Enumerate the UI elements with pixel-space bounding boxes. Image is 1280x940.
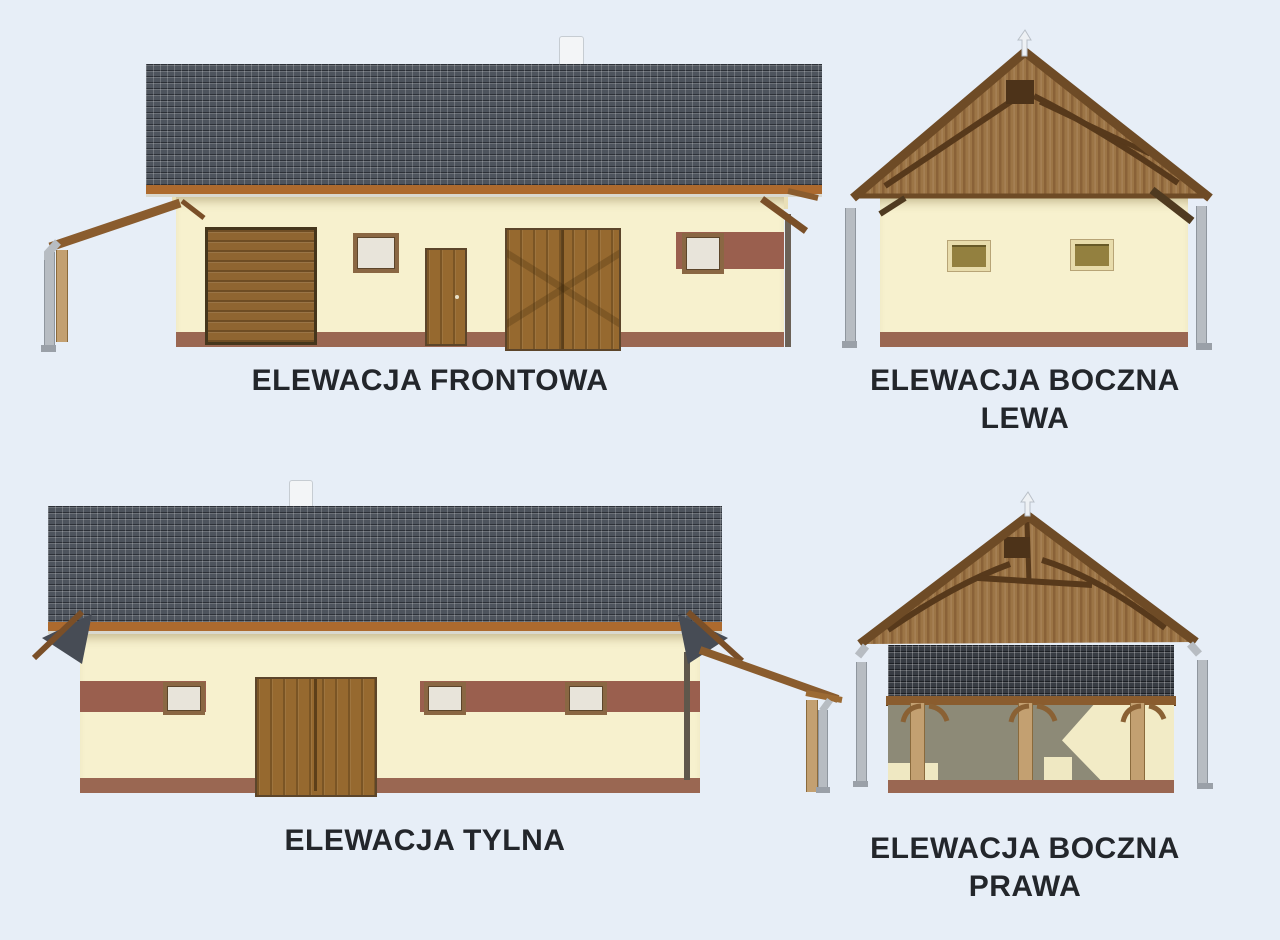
side-right-gable-vent xyxy=(1004,537,1030,558)
front-entry-door xyxy=(425,248,467,346)
side-left-roof-finial xyxy=(1018,30,1031,56)
front-window-small xyxy=(353,233,399,273)
side-left-window-1 xyxy=(948,241,990,271)
front-garage-door xyxy=(205,227,317,345)
side-left-window-2 xyxy=(1071,240,1113,270)
side-left-gable xyxy=(853,30,1210,221)
front-left-downspout-foot xyxy=(41,345,56,352)
side-right-truss-arc-right xyxy=(1042,560,1165,628)
side-left-wall xyxy=(880,198,1188,347)
side-right-truss-arc-left xyxy=(888,564,1010,630)
side-right-gable xyxy=(858,492,1199,656)
caption-side-left-line2: LEWA xyxy=(845,400,1205,438)
side-left-truss-arc-left xyxy=(885,98,1016,186)
side-right-ground-plinth xyxy=(888,780,1174,793)
side-right-inner-light-patch-2 xyxy=(1044,757,1072,782)
rear-carport-beam xyxy=(700,650,838,699)
front-barn-double-door xyxy=(505,228,621,351)
caption-rear-elevation: ELEWACJA TYLNA xyxy=(115,822,735,860)
side-right-post-right xyxy=(1130,703,1145,787)
rear-carport-post xyxy=(806,700,818,792)
rear-carport-downspout-foot xyxy=(816,787,830,793)
side-right-truss-collar-beam xyxy=(978,578,1092,585)
side-right-downspout-left xyxy=(856,662,867,784)
side-right-post-center xyxy=(1018,703,1033,792)
side-left-downspout-left-foot xyxy=(842,341,857,348)
caption-side-left-elevation: ELEWACJA BOCZNA LEWA xyxy=(845,362,1205,438)
caption-side-right-line1: ELEWACJA BOCZNA xyxy=(845,830,1205,868)
rear-window-3 xyxy=(565,682,607,715)
rear-roof-fascia xyxy=(48,622,722,634)
caption-side-right-elevation: ELEWACJA BOCZNA PRAWA xyxy=(845,830,1205,906)
front-roof-fascia xyxy=(146,185,822,197)
caption-front-text: ELEWACJA FRONTOWA xyxy=(252,364,609,397)
side-left-truss-arc-right xyxy=(1034,96,1178,183)
side-right-downspout-right xyxy=(1197,660,1208,786)
front-carport-post xyxy=(56,250,68,342)
rear-double-door xyxy=(255,677,377,797)
side-right-post-left xyxy=(910,703,925,789)
rear-window-1 xyxy=(163,682,205,715)
rear-plinth xyxy=(80,778,700,793)
front-roof xyxy=(146,64,822,185)
side-left-downspout-right xyxy=(1196,206,1207,346)
rear-double-door-split xyxy=(314,679,317,791)
rear-roof xyxy=(48,506,722,622)
side-right-bargeboard xyxy=(860,516,1196,644)
rear-window-2 xyxy=(424,682,466,715)
rear-right-edge-downspout xyxy=(684,652,690,780)
rear-carport-downspout xyxy=(818,710,828,790)
front-left-downspout xyxy=(44,252,55,348)
caption-front-elevation: ELEWACJA FRONTOWA xyxy=(120,362,740,400)
front-right-downspout xyxy=(785,214,791,347)
caption-side-right-line2: PRAWA xyxy=(845,868,1205,906)
side-left-truss-purlin xyxy=(1040,102,1150,154)
side-left-gable-vent xyxy=(1006,80,1034,104)
front-window-right xyxy=(682,233,724,274)
side-right-carport-roof xyxy=(888,645,1174,696)
side-right-downspout-left-foot xyxy=(853,781,868,787)
caption-rear-text: ELEWACJA TYLNA xyxy=(285,824,566,857)
side-right-roof-finial xyxy=(1021,492,1034,516)
side-right-downspout-right-foot xyxy=(1197,783,1213,789)
side-left-bargeboard xyxy=(853,52,1210,198)
side-left-downspout-right-foot xyxy=(1196,343,1212,350)
side-left-plinth xyxy=(880,332,1188,347)
caption-side-left-line1: ELEWACJA BOCZNA xyxy=(845,362,1205,400)
front-entry-door-handle xyxy=(455,295,459,299)
front-barn-door-split xyxy=(561,230,564,349)
side-left-downspout-left xyxy=(845,208,856,344)
side-right-truss-king-post xyxy=(1027,522,1029,580)
architectural-elevations-sheet: ELEWACJA FRONTOWA ELEWACJA BOCZNA LEWA E… xyxy=(0,0,1280,940)
